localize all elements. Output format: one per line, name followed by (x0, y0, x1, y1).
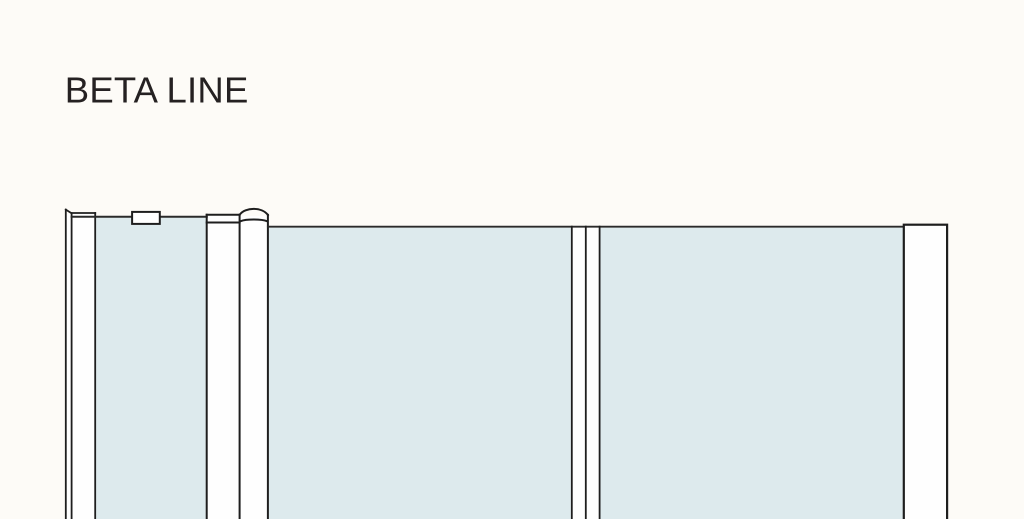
svg-text:BETA LINE: BETA LINE (65, 69, 249, 110)
